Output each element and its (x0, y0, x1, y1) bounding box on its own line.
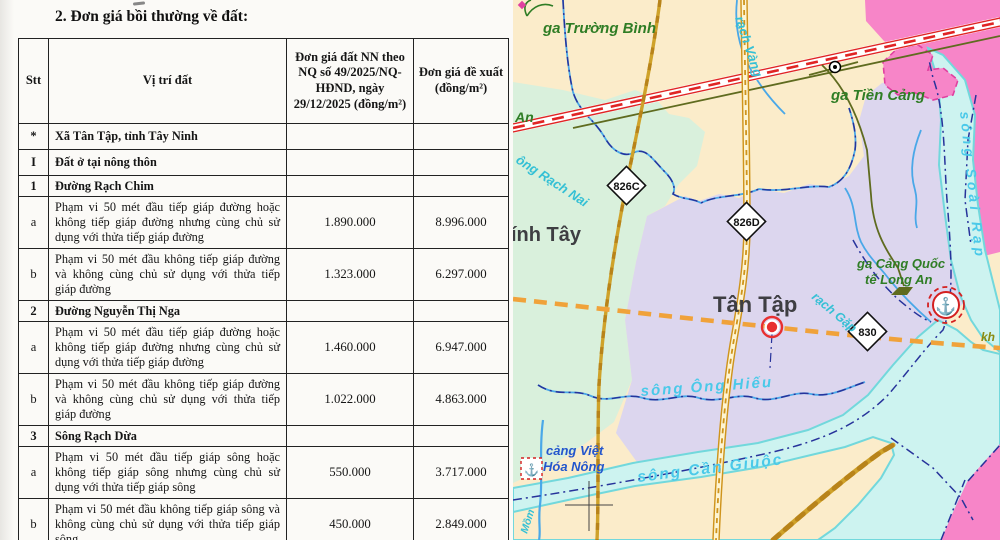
price-table-body: *Xã Tân Tập, tỉnh Tây NinhIĐất ở tại nôn… (19, 124, 509, 540)
svg-text:⚓: ⚓ (524, 463, 539, 477)
table-row: IĐất ở tại nông thôn (19, 150, 509, 176)
table-row: aPhạm vi 50 mét đầu tiếp giáp đường hoặc… (19, 322, 509, 374)
table-row: bPhạm vi 50 mét đầu không tiếp giáp đườn… (19, 249, 509, 301)
scan-edge (0, 0, 14, 540)
svg-text:830: 830 (858, 327, 876, 339)
table-row: 2Đường Nguyễn Thị Nga (19, 301, 509, 322)
col-don-gia-nn: Đơn giá đất NN theo NQ số 49/2025/NQ-HĐN… (287, 39, 414, 124)
document-title: 2. Đơn giá bồi thường về đất: (55, 8, 248, 26)
svg-text:826C: 826C (613, 181, 639, 193)
screenshot-root: 2. Đơn giá bồi thường về đất: Stt Vị trí… (0, 0, 1000, 540)
small-anchor-icon: ⚓ (521, 458, 542, 479)
svg-text:826D: 826D (733, 217, 759, 229)
table-row: bPhạm vi 50 mét đầu không tiếp giáp đườn… (19, 374, 509, 426)
label-tan-tap: Tân Tập (713, 292, 797, 317)
label-ga-cang-1: ga Cảng Quốc (856, 256, 946, 271)
table-row: 1Đường Rạch Chim (19, 176, 509, 197)
label-cang-viet-1: cảng Việt (546, 443, 604, 458)
commune-dot-icon (762, 317, 782, 337)
label-ga-tien-cang: ga Tiền Cảng (830, 87, 925, 104)
table-row: *Xã Tân Tập, tỉnh Tây Ninh (19, 124, 509, 150)
label-cang-viet-2: Hóa Nông (543, 459, 604, 474)
col-stt: Stt (19, 39, 49, 124)
col-vi-tri: Vị trí đất (49, 39, 287, 124)
table-row: aPhạm vi 50 mét đầu tiếp giáp đường hoặc… (19, 197, 509, 249)
table-row: 3Sông Rạch Dừa (19, 426, 509, 447)
price-table: Stt Vị trí đất Đơn giá đất NN theo NQ số… (18, 38, 509, 540)
station-marker-icon (830, 62, 841, 73)
label-ga-truong-binh: ga Trường Bình (542, 20, 656, 37)
price-table-header: Stt Vị trí đất Đơn giá đất NN theo NQ số… (19, 39, 509, 124)
label-ga-cang-2: tế Long An (865, 272, 932, 287)
label-kh-fragment: kh (981, 330, 995, 344)
map-canvas: ⚓ ⚓ 826C 826D (513, 0, 1000, 540)
table-row: bPhạm vi 50 mét đầu không tiếp giáp sông… (19, 499, 509, 540)
compensation-document: 2. Đơn giá bồi thường về đất: Stt Vị trí… (0, 0, 513, 540)
table-row: aPhạm vi 50 mét đầu tiếp giáp sông hoặc … (19, 447, 509, 499)
label-inh-tay: ính Tây (513, 224, 582, 246)
scan-stray-mark (133, 1, 145, 5)
svg-text:⚓: ⚓ (935, 296, 956, 316)
label-an-fragment: An (514, 109, 534, 125)
col-de-xuat: Đơn giá đề xuất (đồng/m²) (414, 39, 509, 124)
map-panel: ⚓ ⚓ 826C 826D (513, 0, 1000, 540)
